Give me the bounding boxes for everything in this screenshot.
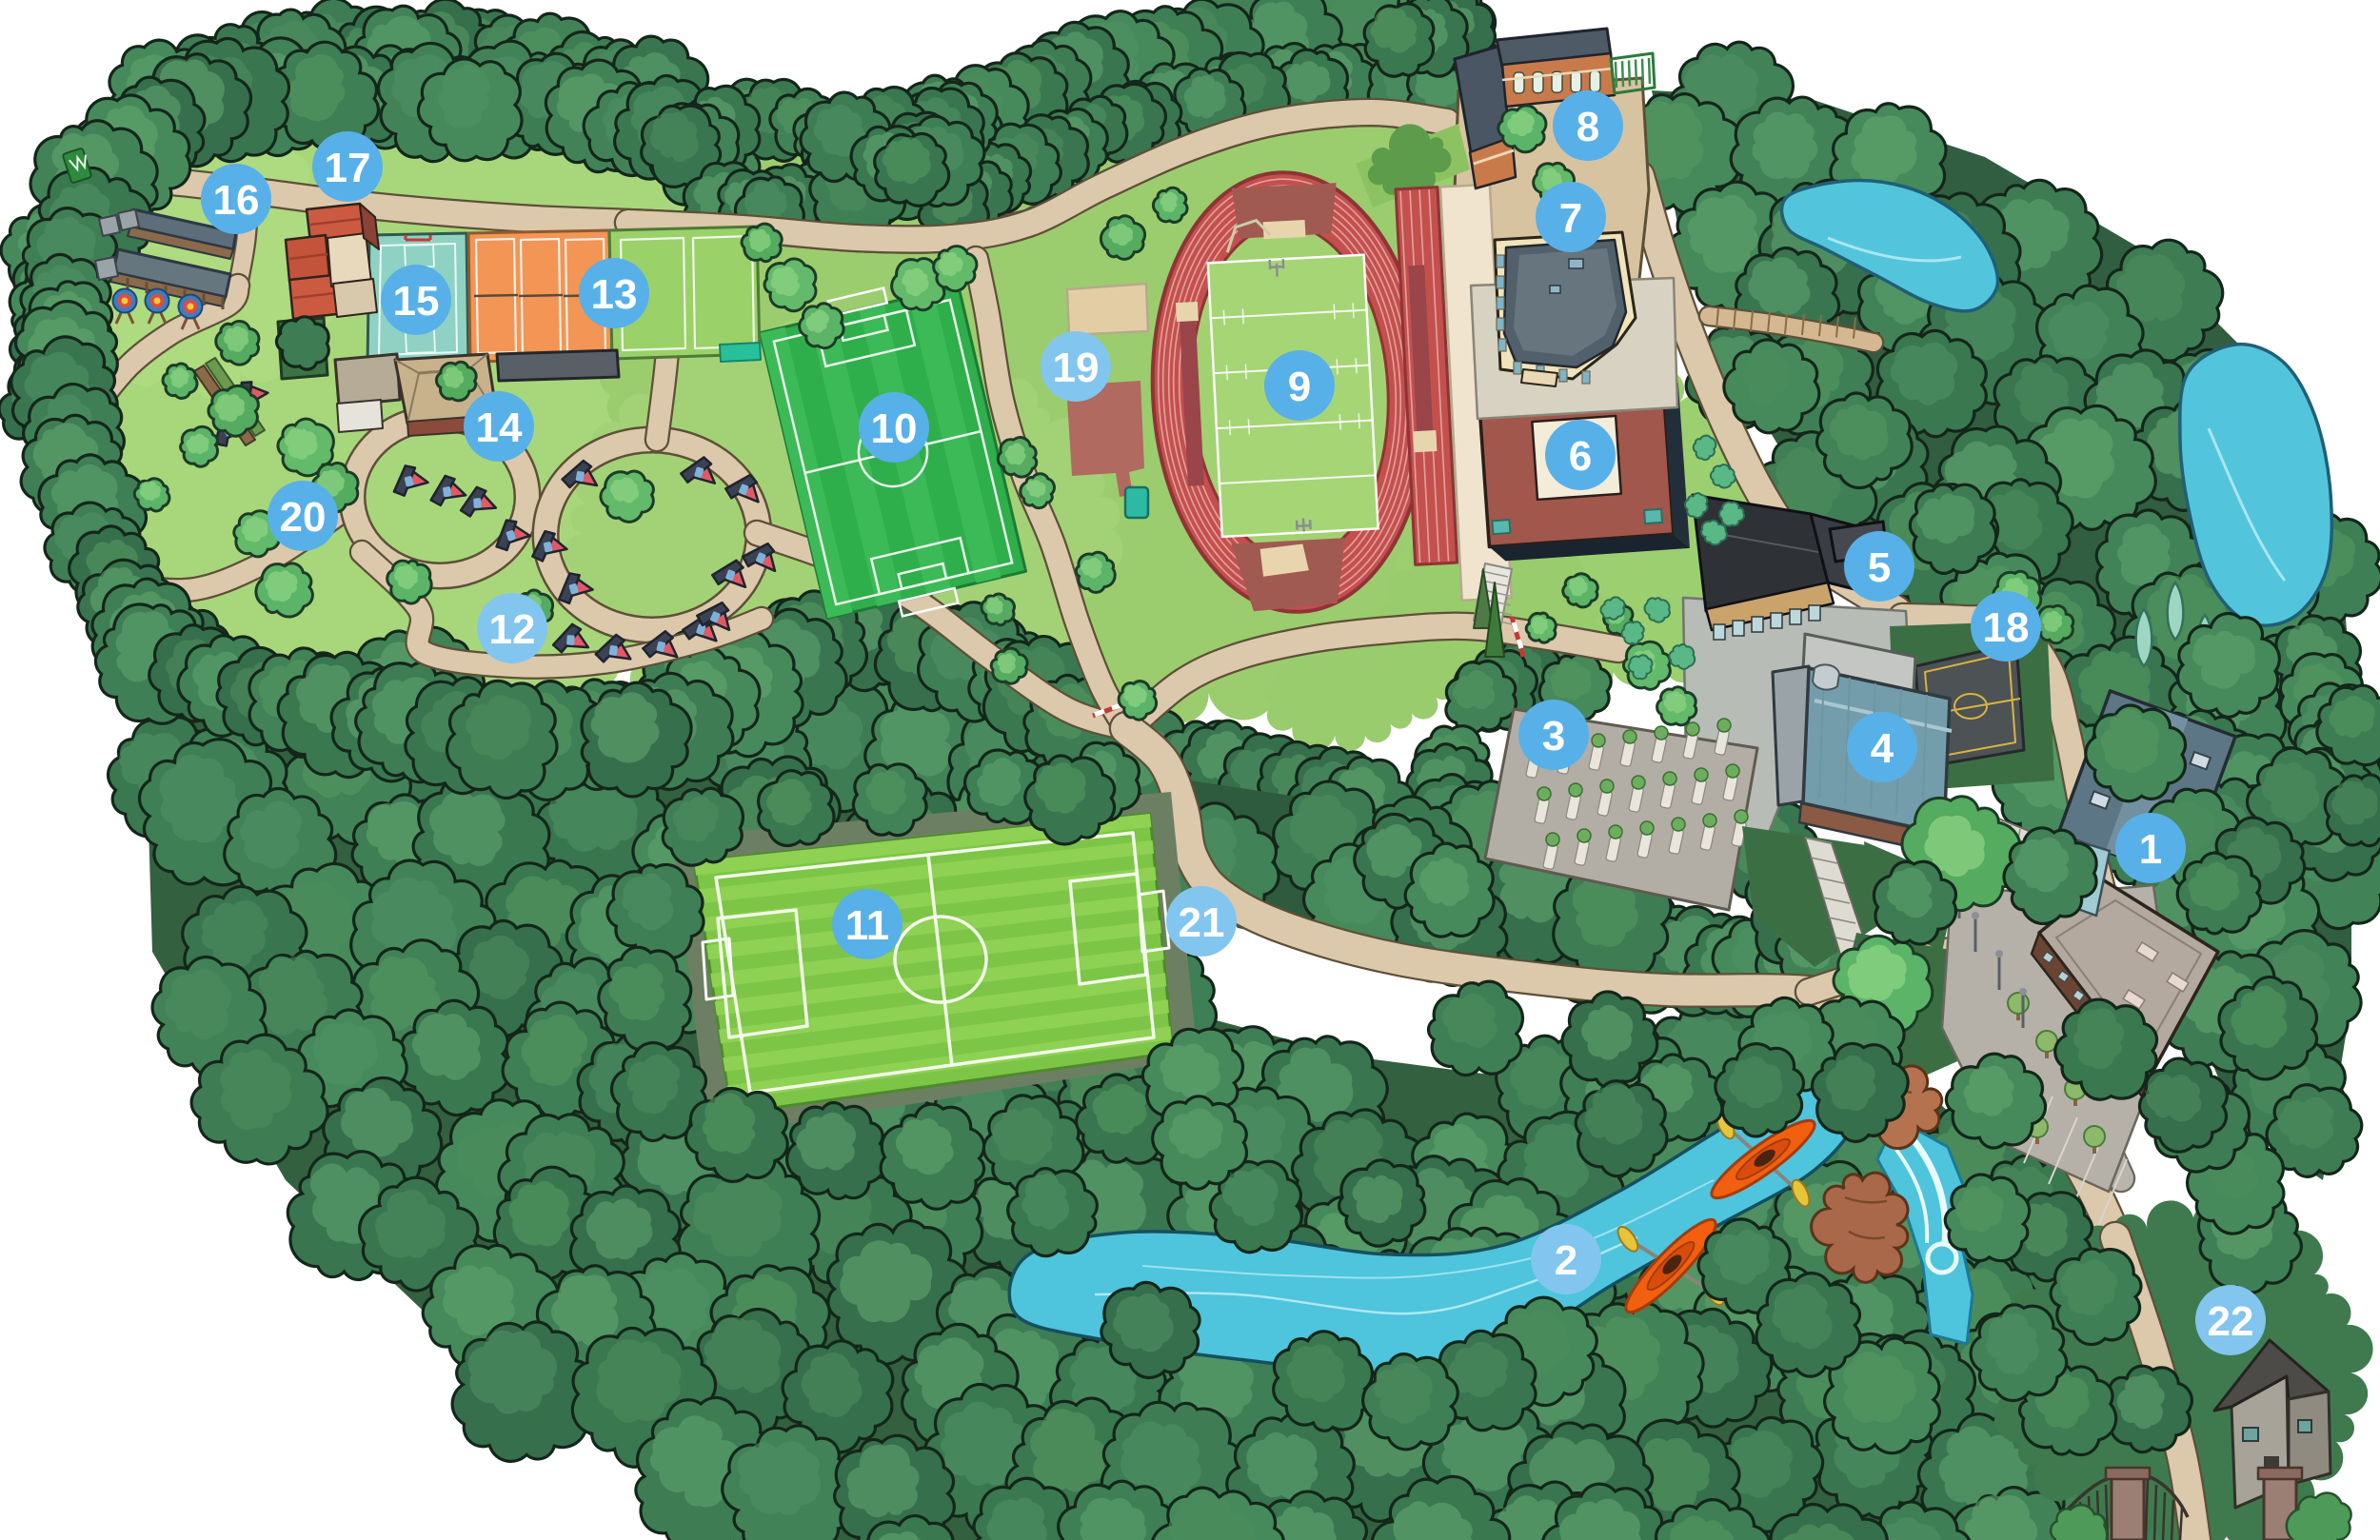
svg-text:21: 21 [1179, 899, 1225, 946]
svg-text:9: 9 [1288, 364, 1311, 410]
svg-text:19: 19 [1053, 345, 1100, 391]
svg-text:17: 17 [325, 145, 371, 191]
svg-text:11: 11 [845, 902, 890, 949]
svg-text:7: 7 [1559, 195, 1582, 242]
svg-text:15: 15 [393, 278, 440, 325]
svg-text:12: 12 [489, 606, 536, 653]
svg-text:13: 13 [591, 271, 638, 318]
svg-text:6: 6 [1569, 433, 1592, 480]
svg-text:22: 22 [2208, 1298, 2254, 1345]
svg-text:16: 16 [213, 177, 260, 224]
svg-text:8: 8 [1577, 104, 1599, 150]
svg-text:1: 1 [2139, 826, 2162, 873]
svg-text:4: 4 [1871, 725, 1894, 772]
svg-text:2: 2 [1555, 1237, 1577, 1284]
svg-text:14: 14 [476, 405, 523, 451]
svg-text:18: 18 [1983, 604, 2030, 651]
svg-text:10: 10 [871, 405, 918, 452]
svg-text:5: 5 [1868, 544, 1891, 591]
svg-text:3: 3 [1542, 713, 1565, 760]
svg-text:20: 20 [280, 494, 327, 541]
